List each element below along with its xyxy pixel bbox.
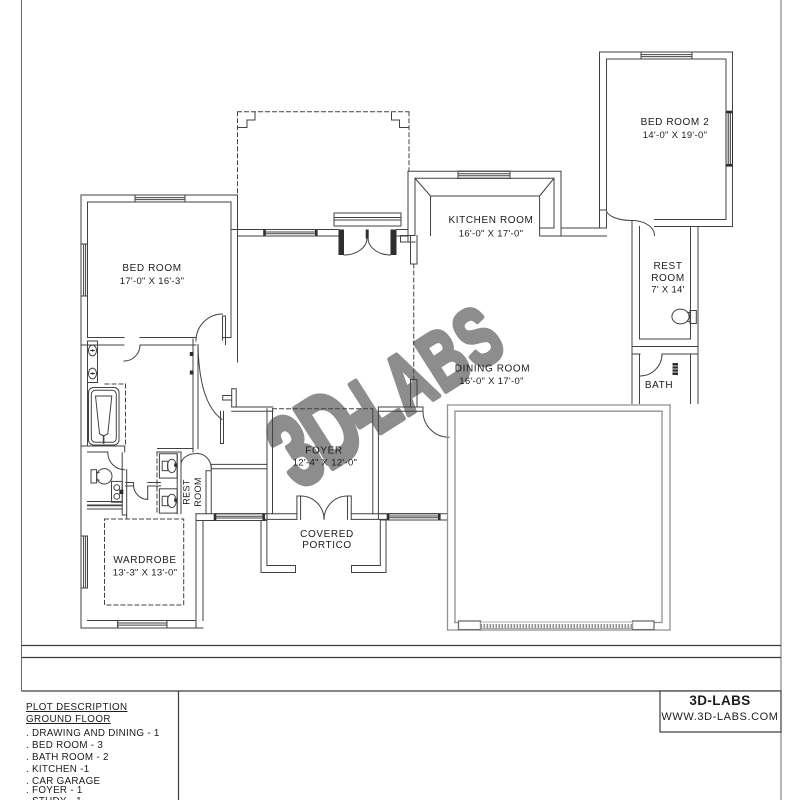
svg-text:16'-0" X 17'-0": 16'-0" X 17'-0"	[459, 376, 524, 387]
svg-text:3D-LABS: 3D-LABS	[689, 693, 750, 708]
svg-text:7' X 14': 7' X 14'	[651, 285, 685, 296]
svg-text:16'-0" X 17'-0": 16'-0" X 17'-0"	[459, 229, 524, 240]
svg-text:WARDROBE: WARDROBE	[113, 555, 176, 566]
svg-text:. FOYER - 1: . FOYER - 1	[26, 785, 83, 796]
svg-text:KITCHEN ROOM: KITCHEN ROOM	[449, 215, 534, 226]
svg-text:BED ROOM: BED ROOM	[122, 263, 181, 274]
svg-text:BATH: BATH	[645, 380, 673, 391]
svg-text:14'-0" X 19'-0": 14'-0" X 19'-0"	[643, 130, 708, 141]
svg-text:WWW.3D-LABS.COM: WWW.3D-LABS.COM	[661, 711, 778, 723]
svg-text:BED ROOM 2: BED ROOM 2	[641, 117, 710, 128]
svg-text:17'-0" X 16'-3": 17'-0" X 16'-3"	[120, 276, 185, 287]
svg-text:DINING ROOM: DINING ROOM	[455, 364, 531, 375]
svg-text:REST: REST	[182, 479, 192, 505]
svg-text:PORTICO: PORTICO	[302, 540, 352, 551]
svg-text:PLOT DESCRIPTION: PLOT DESCRIPTION	[26, 702, 127, 713]
svg-text:ROOM: ROOM	[193, 477, 203, 507]
svg-text:. DRAWING AND DINING - 1: . DRAWING AND DINING - 1	[26, 728, 160, 739]
svg-text:. STUDY - 1: . STUDY - 1	[26, 796, 82, 800]
svg-text:. BED ROOM - 3: . BED ROOM - 3	[26, 740, 103, 751]
svg-text:REST: REST	[653, 261, 682, 272]
svg-text:ROOM: ROOM	[651, 273, 685, 284]
svg-text:13'-3" X 13'-0": 13'-3" X 13'-0"	[113, 568, 178, 579]
svg-text:COVERED: COVERED	[300, 529, 354, 540]
svg-text:. KITCHEN -1: . KITCHEN -1	[26, 764, 89, 775]
svg-text:FOYER: FOYER	[305, 446, 342, 457]
svg-text:GROUND FLOOR: GROUND FLOOR	[26, 714, 111, 725]
svg-text:. BATH ROOM - 2: . BATH ROOM - 2	[26, 752, 109, 763]
svg-text:12'-4" X 12'-0": 12'-4" X 12'-0"	[293, 458, 358, 469]
